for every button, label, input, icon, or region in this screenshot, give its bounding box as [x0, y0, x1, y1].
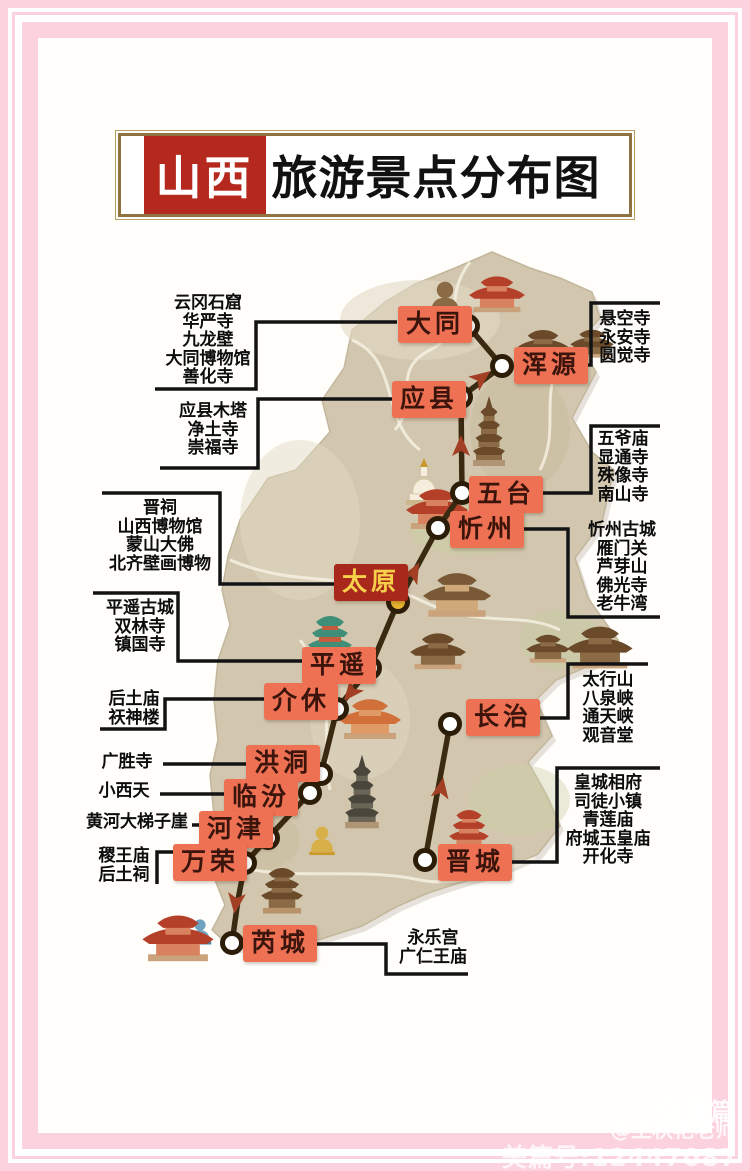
attraction-name: 殊像寺 — [598, 467, 649, 486]
attractions-wutai: 五爷庙显通寺殊像寺南山寺 — [598, 430, 649, 504]
attraction-name: 府城玉皇庙 — [566, 830, 651, 849]
title-banner: 山西 旅游景点分布图 — [118, 133, 632, 217]
city-label-hejin: 河津 — [199, 811, 273, 848]
attraction-name: 云冈石窟 — [166, 294, 251, 313]
route-node-linfen — [301, 784, 320, 803]
attraction-name: 北齐壁画博物 — [109, 555, 211, 574]
attraction-name: 八泉峡 — [583, 690, 634, 709]
attraction-name: 司徒小镇 — [566, 793, 651, 812]
attraction-name: 圆觉寺 — [600, 347, 651, 366]
attraction-name: 观音堂 — [583, 727, 634, 746]
attraction-name: 广仁王庙 — [399, 948, 467, 967]
attraction-name: 净土寺 — [179, 421, 247, 440]
attraction-name: 五爷庙 — [598, 430, 649, 449]
attractions-changzhi: 太行山八泉峡通天峡观音堂 — [583, 671, 634, 745]
attraction-name: 太行山 — [583, 671, 634, 690]
attraction-name: 青莲庙 — [566, 811, 651, 830]
title-province: 山西 — [144, 136, 266, 214]
attraction-name: 佛光寺 — [588, 577, 656, 596]
attraction-name: 雁门关 — [588, 540, 656, 559]
attraction-name: 老牛湾 — [588, 595, 656, 614]
city-label-changzhi: 长治 — [466, 699, 540, 736]
city-label-hongtong: 洪洞 — [246, 745, 320, 782]
city-label-jincheng: 晋城 — [438, 844, 512, 881]
attractions-hongtong: 广胜寺 — [102, 753, 153, 772]
attraction-name: 九龙壁 — [166, 331, 251, 350]
attraction-name: 开化寺 — [566, 848, 651, 867]
attraction-name: 祆神楼 — [109, 709, 160, 728]
city-label-hunyuan: 浑源 — [514, 347, 588, 384]
city-label-pingyao: 平遥 — [302, 647, 376, 684]
attraction-name: 后土祠 — [99, 866, 150, 885]
attractions-taiyuan: 晋祠山西博物馆蒙山大佛北齐壁画博物 — [109, 499, 211, 573]
attraction-name: 通天峡 — [583, 708, 634, 727]
attraction-name: 南山寺 — [598, 486, 649, 505]
attraction-name: 小西天 — [99, 782, 150, 801]
route-node-jincheng — [416, 851, 435, 870]
attractions-hejin: 黄河大梯子崖 — [86, 813, 188, 832]
attraction-name: 蒙山大佛 — [109, 536, 211, 555]
route-node-ruicheng — [223, 934, 242, 953]
map-canvas: 山西 旅游景点分布图 大同浑源应县五台忻州太原平遥介休洪洞临汾河津万荣长治晋城芮… — [0, 0, 750, 1171]
attractions-linfen: 小西天 — [99, 782, 150, 801]
attractions-datong: 云冈石窟华严寺九龙壁大同博物馆善化寺 — [166, 294, 251, 387]
poster: 山西 旅游景点分布图 大同浑源应县五台忻州太原平遥介休洪洞临汾河津万荣长治晋城芮… — [0, 0, 750, 1171]
attractions-jincheng: 皇城相府司徒小镇青莲庙府城玉皇庙开化寺 — [566, 774, 651, 867]
attraction-name: 崇福寺 — [179, 439, 247, 458]
attractions-ruicheng: 永乐宫广仁王庙 — [399, 929, 467, 966]
attraction-name: 显通寺 — [598, 449, 649, 468]
attractions-wanrong: 稷王庙后土祠 — [99, 847, 150, 884]
attraction-name: 忻州古城 — [588, 521, 656, 540]
attractions-jiexiu: 后土庙祆神楼 — [109, 690, 160, 727]
attraction-name: 永安寺 — [600, 329, 651, 348]
attraction-name: 皇城相府 — [566, 774, 651, 793]
city-label-jiexiu: 介休 — [264, 683, 338, 720]
attraction-name: 芦芽山 — [588, 558, 656, 577]
route-node-hunyuan — [493, 357, 512, 376]
attractions-xinzhou: 忻州古城雁门关芦芽山佛光寺老牛湾 — [588, 521, 656, 614]
city-label-xinzhou: 忻州 — [450, 511, 524, 548]
attraction-name: 应县木塔 — [179, 402, 247, 421]
attraction-name: 后土庙 — [109, 690, 160, 709]
attraction-name: 晋祠 — [109, 499, 211, 518]
city-label-datong: 大同 — [398, 306, 472, 343]
attractions-hunyuan: 悬空寺永安寺圆觉寺 — [600, 310, 651, 366]
attraction-name: 平遥古城 — [106, 599, 174, 618]
watermark-id: 美篇号:12447087 — [502, 1138, 738, 1171]
attraction-name: 大同博物馆 — [166, 350, 251, 369]
attraction-name: 稷王庙 — [99, 847, 150, 866]
attraction-name: 黄河大梯子崖 — [86, 813, 188, 832]
city-label-yingxian: 应县 — [392, 381, 466, 418]
attraction-name: 华严寺 — [166, 313, 251, 332]
route-node-xinzhou — [429, 519, 448, 538]
title-text: 旅游景点分布图 — [266, 136, 607, 214]
attractions-yingxian: 应县木塔净土寺崇福寺 — [179, 402, 247, 458]
city-label-taiyuan: 太原 — [334, 564, 408, 601]
attraction-name: 悬空寺 — [600, 310, 651, 329]
attraction-name: 善化寺 — [166, 368, 251, 387]
attraction-name: 双林寺 — [106, 618, 174, 637]
attraction-name: 广胜寺 — [102, 753, 153, 772]
city-label-wanrong: 万荣 — [173, 844, 247, 881]
city-label-ruicheng: 芮城 — [243, 925, 317, 962]
attraction-name: 山西博物馆 — [109, 518, 211, 537]
attractions-pingyao: 平遥古城双林寺镇国寺 — [106, 599, 174, 655]
city-label-wutai: 五台 — [469, 476, 543, 513]
attraction-name: 永乐宫 — [399, 929, 467, 948]
route-node-changzhi — [441, 715, 460, 734]
attraction-name: 镇国寺 — [106, 636, 174, 655]
